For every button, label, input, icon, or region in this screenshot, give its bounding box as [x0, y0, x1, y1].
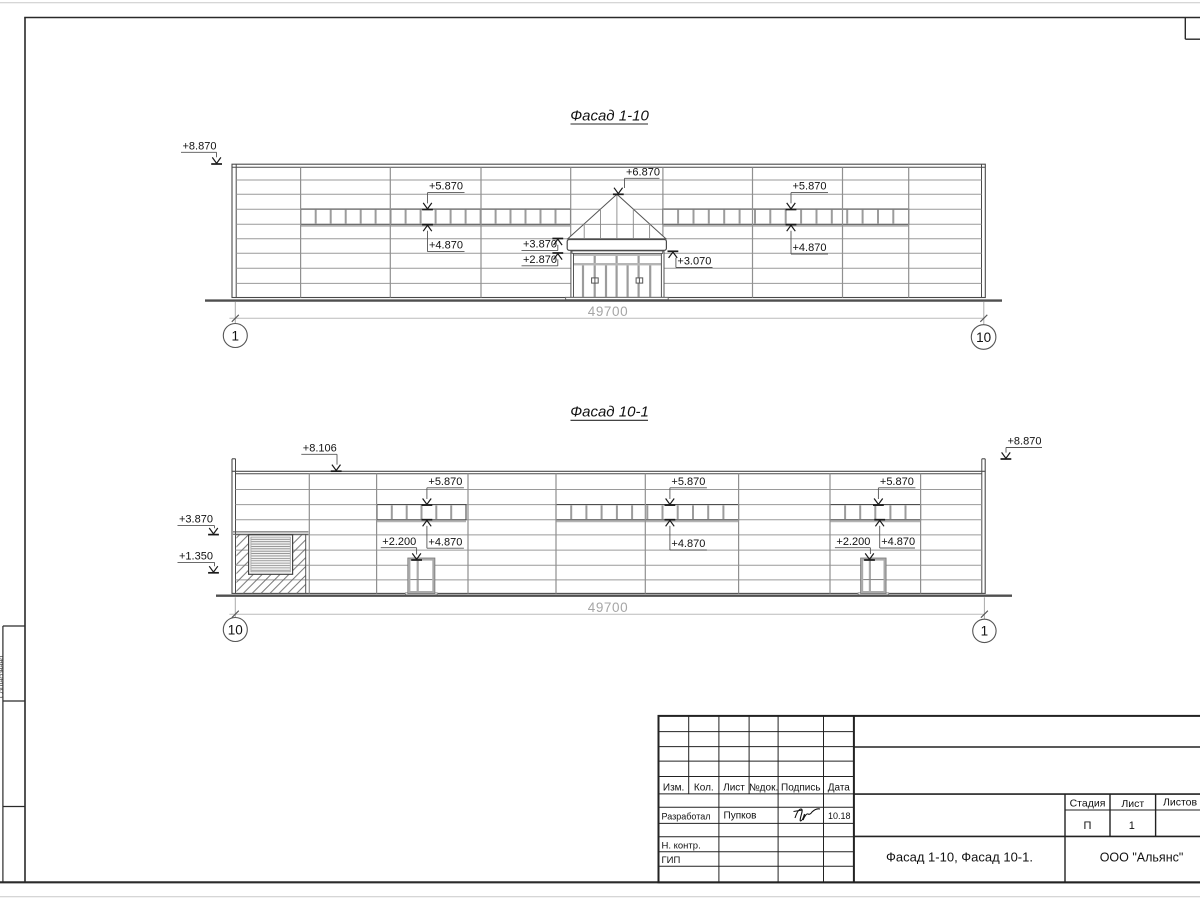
svg-text:1: 1	[232, 328, 240, 343]
svg-text:+4.870: +4.870	[428, 536, 462, 548]
svg-text:ООО "Альянс": ООО "Альянс"	[1100, 851, 1184, 865]
svg-text:+5.870: +5.870	[428, 476, 462, 488]
svg-text:+4.870: +4.870	[429, 240, 463, 252]
svg-text:+5.870: +5.870	[671, 476, 705, 488]
svg-text:+8.870: +8.870	[1008, 436, 1042, 448]
svg-text:+4.870: +4.870	[793, 242, 827, 254]
svg-text:+2.200: +2.200	[836, 536, 870, 548]
svg-text:Лист: Лист	[1121, 798, 1144, 810]
svg-text:+8.106: +8.106	[303, 442, 337, 454]
svg-text:№док.: №док.	[749, 782, 778, 793]
svg-text:Изм.: Изм.	[663, 782, 684, 793]
svg-text:Дата: Дата	[828, 782, 851, 793]
svg-text:+1.350: +1.350	[179, 551, 213, 563]
svg-text:ГИП: ГИП	[662, 855, 681, 866]
svg-text:Н. контр.: Н. контр.	[662, 841, 701, 852]
svg-text:+3.070: +3.070	[677, 256, 711, 268]
svg-text:+6.870: +6.870	[626, 166, 660, 178]
svg-text:+3.870: +3.870	[179, 514, 213, 526]
svg-text:1: 1	[1129, 820, 1135, 832]
svg-text:+5.870: +5.870	[793, 181, 827, 193]
svg-text:+4.870: +4.870	[671, 538, 705, 550]
svg-text:+4.870: +4.870	[881, 536, 915, 548]
svg-text:Кол.: Кол.	[694, 782, 714, 793]
svg-text:49700: 49700	[588, 304, 629, 319]
svg-text:+8.870: +8.870	[183, 140, 217, 152]
svg-text:Листов: Листов	[1163, 797, 1198, 809]
svg-text:1: 1	[981, 624, 989, 639]
svg-text:49700: 49700	[588, 600, 629, 615]
svg-text:Фасад 1-10, Фасад 10-1.: Фасад 1-10, Фасад 10-1.	[886, 850, 1033, 865]
svg-text:Лист: Лист	[723, 782, 745, 793]
svg-text:Фасад 1-10: Фасад 1-10	[570, 108, 649, 125]
svg-text:П: П	[1084, 820, 1092, 832]
svg-text:10: 10	[976, 330, 991, 345]
svg-text:Пупков: Пупков	[724, 811, 757, 822]
svg-text:+2.870: +2.870	[523, 254, 557, 266]
svg-text:+3.870: +3.870	[523, 239, 557, 251]
svg-text:Стадия: Стадия	[1070, 797, 1106, 809]
svg-text:+5.870: +5.870	[880, 476, 914, 488]
svg-text:10.18: 10.18	[828, 811, 851, 821]
svg-text:Фасад 10-1: Фасад 10-1	[570, 404, 649, 421]
svg-text:+5.870: +5.870	[429, 181, 463, 193]
svg-text:10: 10	[228, 622, 243, 637]
svg-text:Согласовано: Согласовано	[0, 656, 6, 698]
svg-text:Подпись: Подпись	[781, 782, 821, 793]
svg-text:+2.200: +2.200	[382, 536, 416, 548]
svg-text:Разработал: Разработал	[662, 812, 711, 822]
